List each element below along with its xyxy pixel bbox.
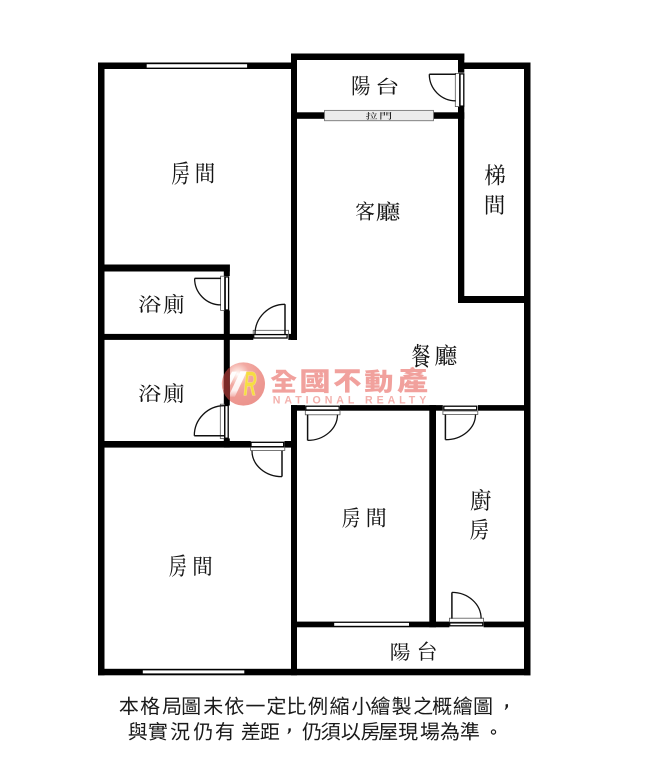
svg-text:NATIONAL REALTY: NATIONAL REALTY <box>273 394 427 406</box>
